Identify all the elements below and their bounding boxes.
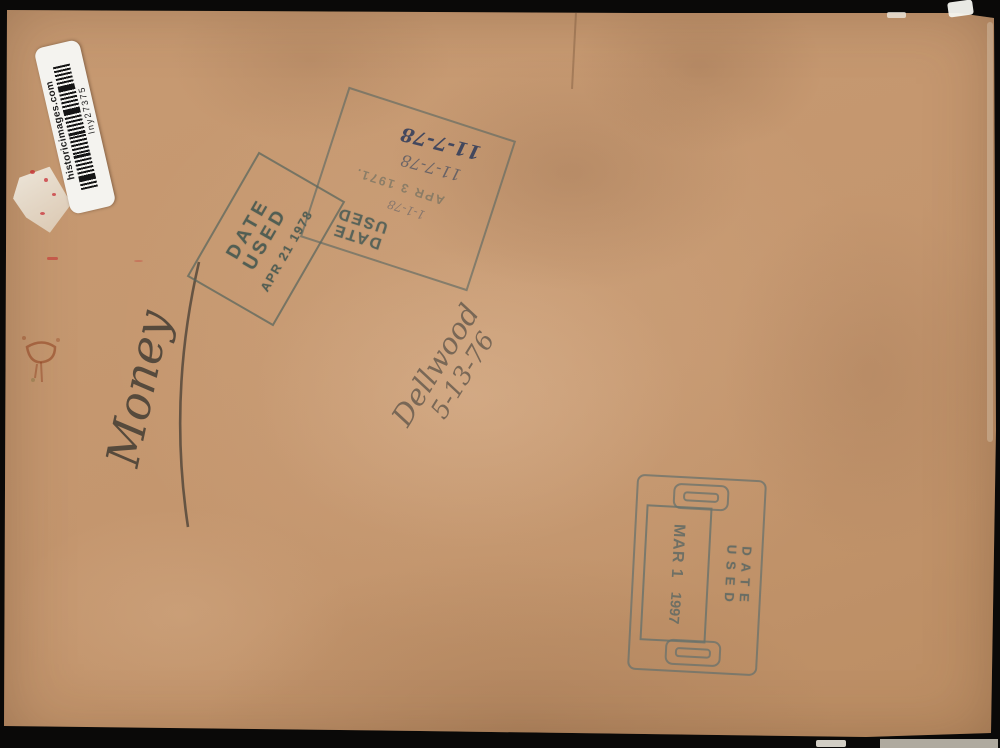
red-speck bbox=[30, 170, 35, 174]
paper-edge-highlight bbox=[987, 22, 993, 442]
stamp-tab-pill bbox=[683, 491, 719, 503]
stamp-tab-pill bbox=[675, 647, 711, 659]
stamp-words-date-used: DATE USED bbox=[330, 204, 390, 253]
stamp-date-box: MAR 1 1997 bbox=[640, 504, 713, 643]
red-dash bbox=[47, 257, 58, 260]
corner-backing-patch bbox=[880, 739, 998, 748]
stamp-label-date-used: DATE USED bbox=[720, 514, 756, 639]
red-speck bbox=[52, 193, 56, 196]
stamp-date-used-1997: DATE USED MAR 1 1997 bbox=[627, 474, 767, 677]
photo-scan: historicimages.com lny27375 DATE USED AP… bbox=[0, 0, 1000, 748]
tape-bit bbox=[887, 12, 906, 18]
stamp-year-text: 1997 bbox=[665, 591, 684, 625]
red-speck bbox=[44, 178, 48, 182]
corner-speck bbox=[816, 740, 846, 747]
stamp-date-text: MAR 1 bbox=[667, 523, 688, 579]
red-speck bbox=[40, 212, 45, 215]
